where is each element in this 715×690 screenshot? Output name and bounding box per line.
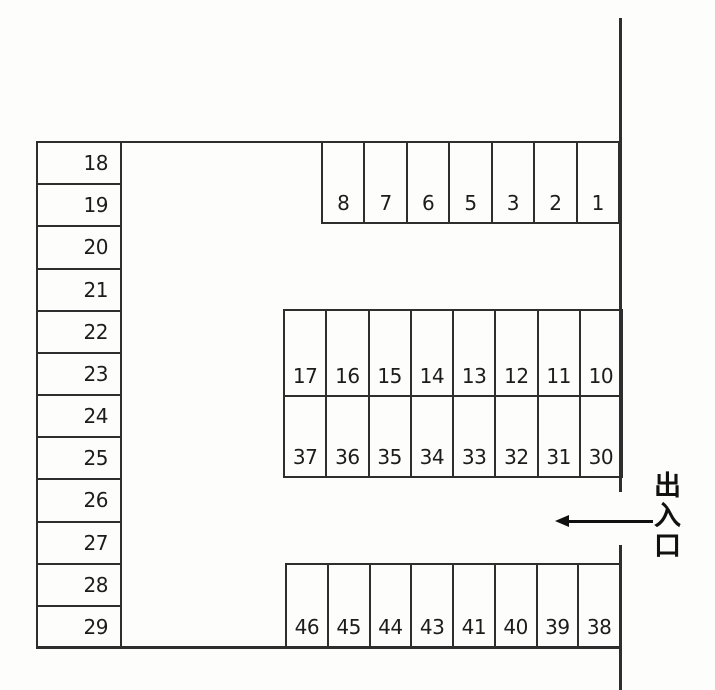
- parking-space-21: 21: [38, 268, 120, 310]
- parking-space-39: 39: [536, 565, 578, 646]
- parking-space-22: 22: [38, 310, 120, 352]
- parking-space-6: 6: [406, 143, 448, 222]
- parking-space-32: 32: [494, 397, 536, 476]
- island-lower-row: 37 36 35 34 33 32 31 30: [285, 395, 621, 476]
- parking-space-41: 41: [452, 565, 494, 646]
- top-stall-row: 8 7 6 5 3 2 1: [321, 141, 620, 224]
- parking-space-10: 10: [579, 311, 621, 395]
- parking-space-44: 44: [369, 565, 411, 646]
- parking-space-18: 18: [38, 143, 120, 183]
- parking-space-40: 40: [494, 565, 536, 646]
- parking-space-29: 29: [38, 605, 120, 647]
- parking-space-26: 26: [38, 478, 120, 520]
- center-stall-island: 17 16 15 14 13 12 11 10 37 36 35 34 33 3…: [283, 309, 623, 478]
- parking-space-35: 35: [368, 397, 410, 476]
- parking-space-46: 46: [287, 565, 327, 646]
- parking-space-1: 1: [576, 143, 618, 222]
- parking-space-28: 28: [38, 563, 120, 605]
- bottom-stall-row: 46 45 44 43 41 40 39 38: [285, 563, 621, 648]
- parking-space-5: 5: [448, 143, 490, 222]
- parking-space-2: 2: [533, 143, 575, 222]
- parking-space-37: 37: [285, 397, 325, 476]
- parking-space-27: 27: [38, 521, 120, 563]
- arrow-left-icon: [555, 515, 569, 527]
- parking-space-15: 15: [368, 311, 410, 395]
- parking-space-45: 45: [327, 565, 369, 646]
- island-upper-row: 17 16 15 14 13 12 11 10: [285, 311, 621, 395]
- parking-space-34: 34: [410, 397, 452, 476]
- entrance-arrow-shaft: [568, 520, 653, 523]
- parking-space-13: 13: [452, 311, 494, 395]
- parking-space-23: 23: [38, 352, 120, 394]
- parking-lot-map: 18 19 20 21 22 23 24 25 26 27 28 29 8 7 …: [0, 0, 715, 690]
- parking-space-12: 12: [494, 311, 536, 395]
- parking-space-30: 30: [579, 397, 621, 476]
- parking-space-25: 25: [38, 436, 120, 478]
- parking-space-14: 14: [410, 311, 452, 395]
- parking-space-36: 36: [325, 397, 367, 476]
- entrance-exit-label: 出入口: [648, 471, 680, 571]
- parking-space-17: 17: [285, 311, 325, 395]
- parking-space-31: 31: [537, 397, 579, 476]
- parking-space-16: 16: [325, 311, 367, 395]
- parking-space-7: 7: [363, 143, 405, 222]
- parking-space-3: 3: [491, 143, 533, 222]
- parking-space-19: 19: [38, 183, 120, 225]
- parking-space-11: 11: [537, 311, 579, 395]
- parking-space-8: 8: [323, 143, 363, 222]
- parking-space-24: 24: [38, 394, 120, 436]
- parking-space-33: 33: [452, 397, 494, 476]
- parking-space-38: 38: [577, 565, 619, 646]
- left-stall-column: 18 19 20 21 22 23 24 25 26 27 28 29: [36, 141, 122, 649]
- parking-space-20: 20: [38, 225, 120, 267]
- parking-space-43: 43: [410, 565, 452, 646]
